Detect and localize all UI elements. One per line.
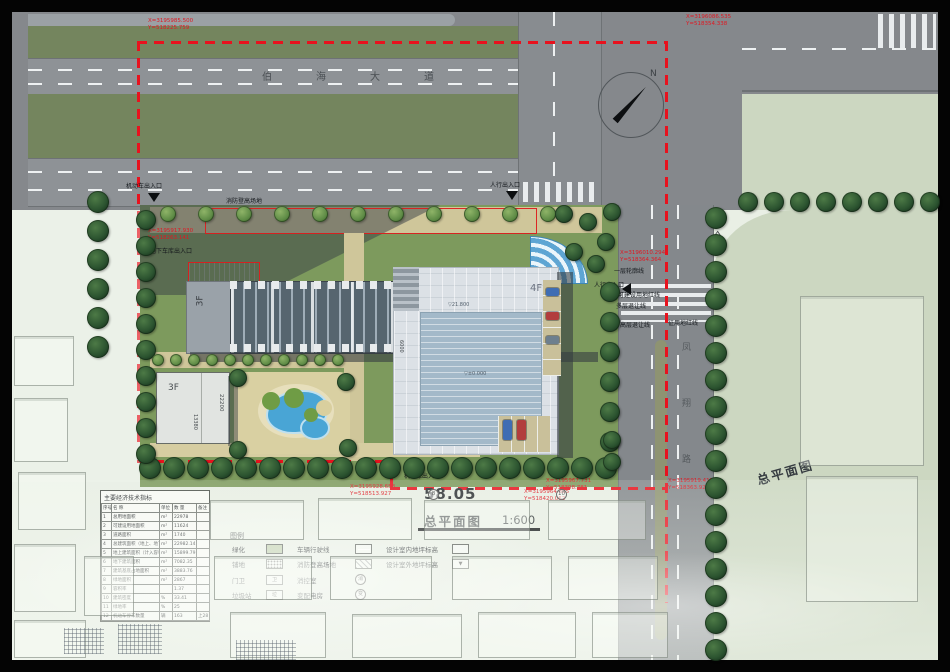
tree [403,457,425,479]
stair-block [393,267,419,311]
tree [170,354,182,366]
context-building [548,500,646,540]
tree [242,354,254,366]
tree [565,243,583,261]
vehicle-entrance-label: 机动车出入口 [126,184,162,191]
tree [87,278,109,300]
tree [87,307,109,329]
context-building [14,544,76,612]
context-building [806,476,918,602]
context-building [318,498,412,540]
context-building [352,614,462,658]
tree [600,342,620,362]
context-building [84,556,134,616]
median-band [28,14,455,26]
tree [600,312,620,332]
lane-marking [28,171,600,173]
tree [87,220,109,242]
axis-bubble: 10 [556,489,567,500]
main-road [28,58,520,96]
context-grid [118,624,162,654]
lane-marking [28,83,520,85]
tree [426,206,442,222]
tree [738,192,758,212]
tree [163,457,185,479]
tree [790,192,810,212]
podium-building-head [186,281,232,354]
table-header-cell: 名 称 [112,504,160,513]
wall-line [201,373,202,443]
coordinate-label: X=3195917.930Y=518263.141 [148,228,193,242]
legend-label: 绿化 [232,544,266,554]
tree [229,369,247,387]
tree [136,262,156,282]
red-boundary-top [137,41,665,44]
crosswalk [523,182,597,202]
tree [136,288,156,308]
tree [705,369,727,391]
coordinate-label: X=3195985.500Y=518225.759 [148,18,193,32]
table-header-cell: 序号 [102,504,112,513]
tree [894,192,914,212]
tree [920,192,940,212]
tree [816,192,836,212]
context-building [452,556,552,600]
highrise-setback-label: 高层退让线 [620,323,650,330]
tree [499,457,521,479]
tree [283,457,305,479]
tree [600,372,620,392]
tree [259,457,281,479]
dimension-6000: 6000 [398,340,404,353]
tree [705,585,727,607]
tree [87,336,109,358]
curb-line [742,90,938,92]
mound [284,388,304,408]
tree [705,612,727,634]
tree [355,457,377,479]
tree [600,282,620,302]
table-header-cell: 单位 [160,504,173,513]
tree [523,457,545,479]
table-row: 2可建设用地面积m²11624 [102,522,210,531]
site-plan-sheet: 伯海大道 凤翔路 3F [0,0,950,672]
parked-car [546,288,559,296]
coordinate-label: X=3196086.535Y=518354.338 [686,14,731,28]
tree [136,314,156,334]
tree [475,457,497,479]
tree [136,210,156,230]
lane-marking [28,69,520,71]
tree [388,206,404,222]
tree [705,288,727,310]
tree [152,354,164,366]
legend-label: 设计室内地坪标高 [386,544,452,554]
tree [331,457,353,479]
tree [705,639,727,661]
tree [136,366,156,386]
elevation-label: ▽21.800 [448,303,469,309]
dimension-13380: 13380 [192,414,198,430]
garage-entrance-label: 地下车库出入口 [150,249,192,256]
context-building [424,500,530,540]
context-building [330,556,432,600]
tree [229,441,247,459]
tree [705,342,727,364]
tree [705,396,727,418]
annex-floor-label: 3F [168,384,179,394]
context-grid [64,628,104,654]
tree [274,206,290,222]
tree [211,457,233,479]
tree [332,354,344,366]
tree [307,457,329,479]
legend-label: 车辆行驶线 [297,544,355,554]
indoor-elevation-mark-icon [452,544,469,554]
tree [603,431,621,449]
road-name-char: 大 [370,68,380,83]
tree [224,354,236,366]
pedestrian-entrance-label: 人行出入口 [490,183,520,190]
drive-line-swatch-icon [355,544,372,554]
context-building [478,612,576,658]
context-building [210,500,304,540]
tree [464,206,480,222]
road-name-char: 凤 [682,340,691,353]
tree [278,354,290,366]
tree [206,354,218,366]
table-row: 1总用地面积m²22978 [102,513,210,522]
tower-floor-label: 4F [530,283,542,294]
tree [136,418,156,438]
tree [350,206,366,222]
tree [603,203,621,221]
north-label: N [650,70,657,80]
tree [296,354,308,366]
tree [379,457,401,479]
tree [705,477,727,499]
entrance-triangle-icon [148,193,160,202]
tree [705,558,727,580]
tree [136,392,156,412]
podium-floor-label: 3F [197,295,207,306]
tree [705,207,727,229]
tree [339,439,357,457]
tree [597,233,615,251]
lane-marking [677,205,679,660]
tree [235,457,257,479]
tree [198,206,214,222]
parked-car [546,336,559,344]
context-building [214,556,312,600]
fire-area-label: 消防登高场地 [226,199,262,206]
road-name-char: 翔 [682,396,691,409]
tree [571,457,593,479]
coordinate-label: X=3195928.658Y=518513.927 [350,484,395,498]
mound [316,400,332,416]
elevation-label: ▽±0.000 [464,372,486,378]
tree [160,206,176,222]
table-row: 4总建筑面积（地上、地下）m²22982.14 [102,540,210,549]
tree [705,423,727,445]
tree [705,261,727,283]
tree [236,206,252,222]
table-header-row: 序号名 称单位数 量备注 [102,504,210,513]
table-header-cell: 数 量 [173,504,197,513]
road-name-char: 路 [682,452,691,465]
tree [603,453,621,471]
tree [87,249,109,271]
buildable-red-line-label: 可建设用地红线 [618,293,660,300]
tree [600,402,620,422]
entrance-triangle-icon [506,191,518,200]
greenery-swatch-icon [266,544,283,554]
tree [705,504,727,526]
crosswalk [878,14,936,48]
tree [540,206,556,222]
tree [337,373,355,391]
tree [451,457,473,479]
tree [587,255,605,273]
tree [136,236,156,256]
tree [87,191,109,213]
tree [555,205,573,223]
tree [260,354,272,366]
land-red-line-label: 征用地红线 [668,321,698,328]
tree [427,457,449,479]
fire-lane-outline [205,208,537,234]
tree [136,444,156,464]
lane-marking [742,48,938,50]
tree [842,192,862,212]
context-building [14,398,68,462]
dimension-22200: 22200 [218,394,224,412]
tree [187,457,209,479]
parked-car [517,420,526,440]
coordinate-label: X=3196010.294Y=518364.364 [620,250,665,264]
axis-bubble: 8 [428,489,439,500]
tree [705,531,727,553]
context-building [800,296,924,466]
context-grid [236,640,296,660]
legend-row: 绿化 车辆行驶线 设计室内地坪标高 [232,544,469,554]
context-building [592,612,668,658]
mound [262,392,280,410]
first-floor-outline-label: 一层轮廓线 [614,269,644,276]
tree [502,206,518,222]
context-building [14,336,74,386]
tree [188,354,200,366]
tree [705,450,727,472]
tree [314,354,326,366]
lane-marking [553,12,555,182]
column-stubs [230,281,398,289]
table-title: 主要经济技术指标 [101,491,209,503]
road-name-char: 道 [424,68,434,83]
parked-car [503,420,512,440]
road-name-char: 伯 [262,68,272,83]
tree [547,457,569,479]
tree [764,192,784,212]
tree [868,192,888,212]
multi-setback-label: 多层退让线 [616,304,646,311]
context-building [568,556,658,600]
tree [705,315,727,337]
context-building [18,472,86,530]
green-verge [28,94,520,158]
parked-car [546,312,559,320]
column-stubs [230,344,398,352]
table-header-cell: 备注 [197,504,210,513]
tree [312,206,328,222]
road-name-char: 海 [316,68,326,83]
table-row: 3道路面积m²1740 [102,531,210,540]
tree [705,234,727,256]
tree [579,213,597,231]
